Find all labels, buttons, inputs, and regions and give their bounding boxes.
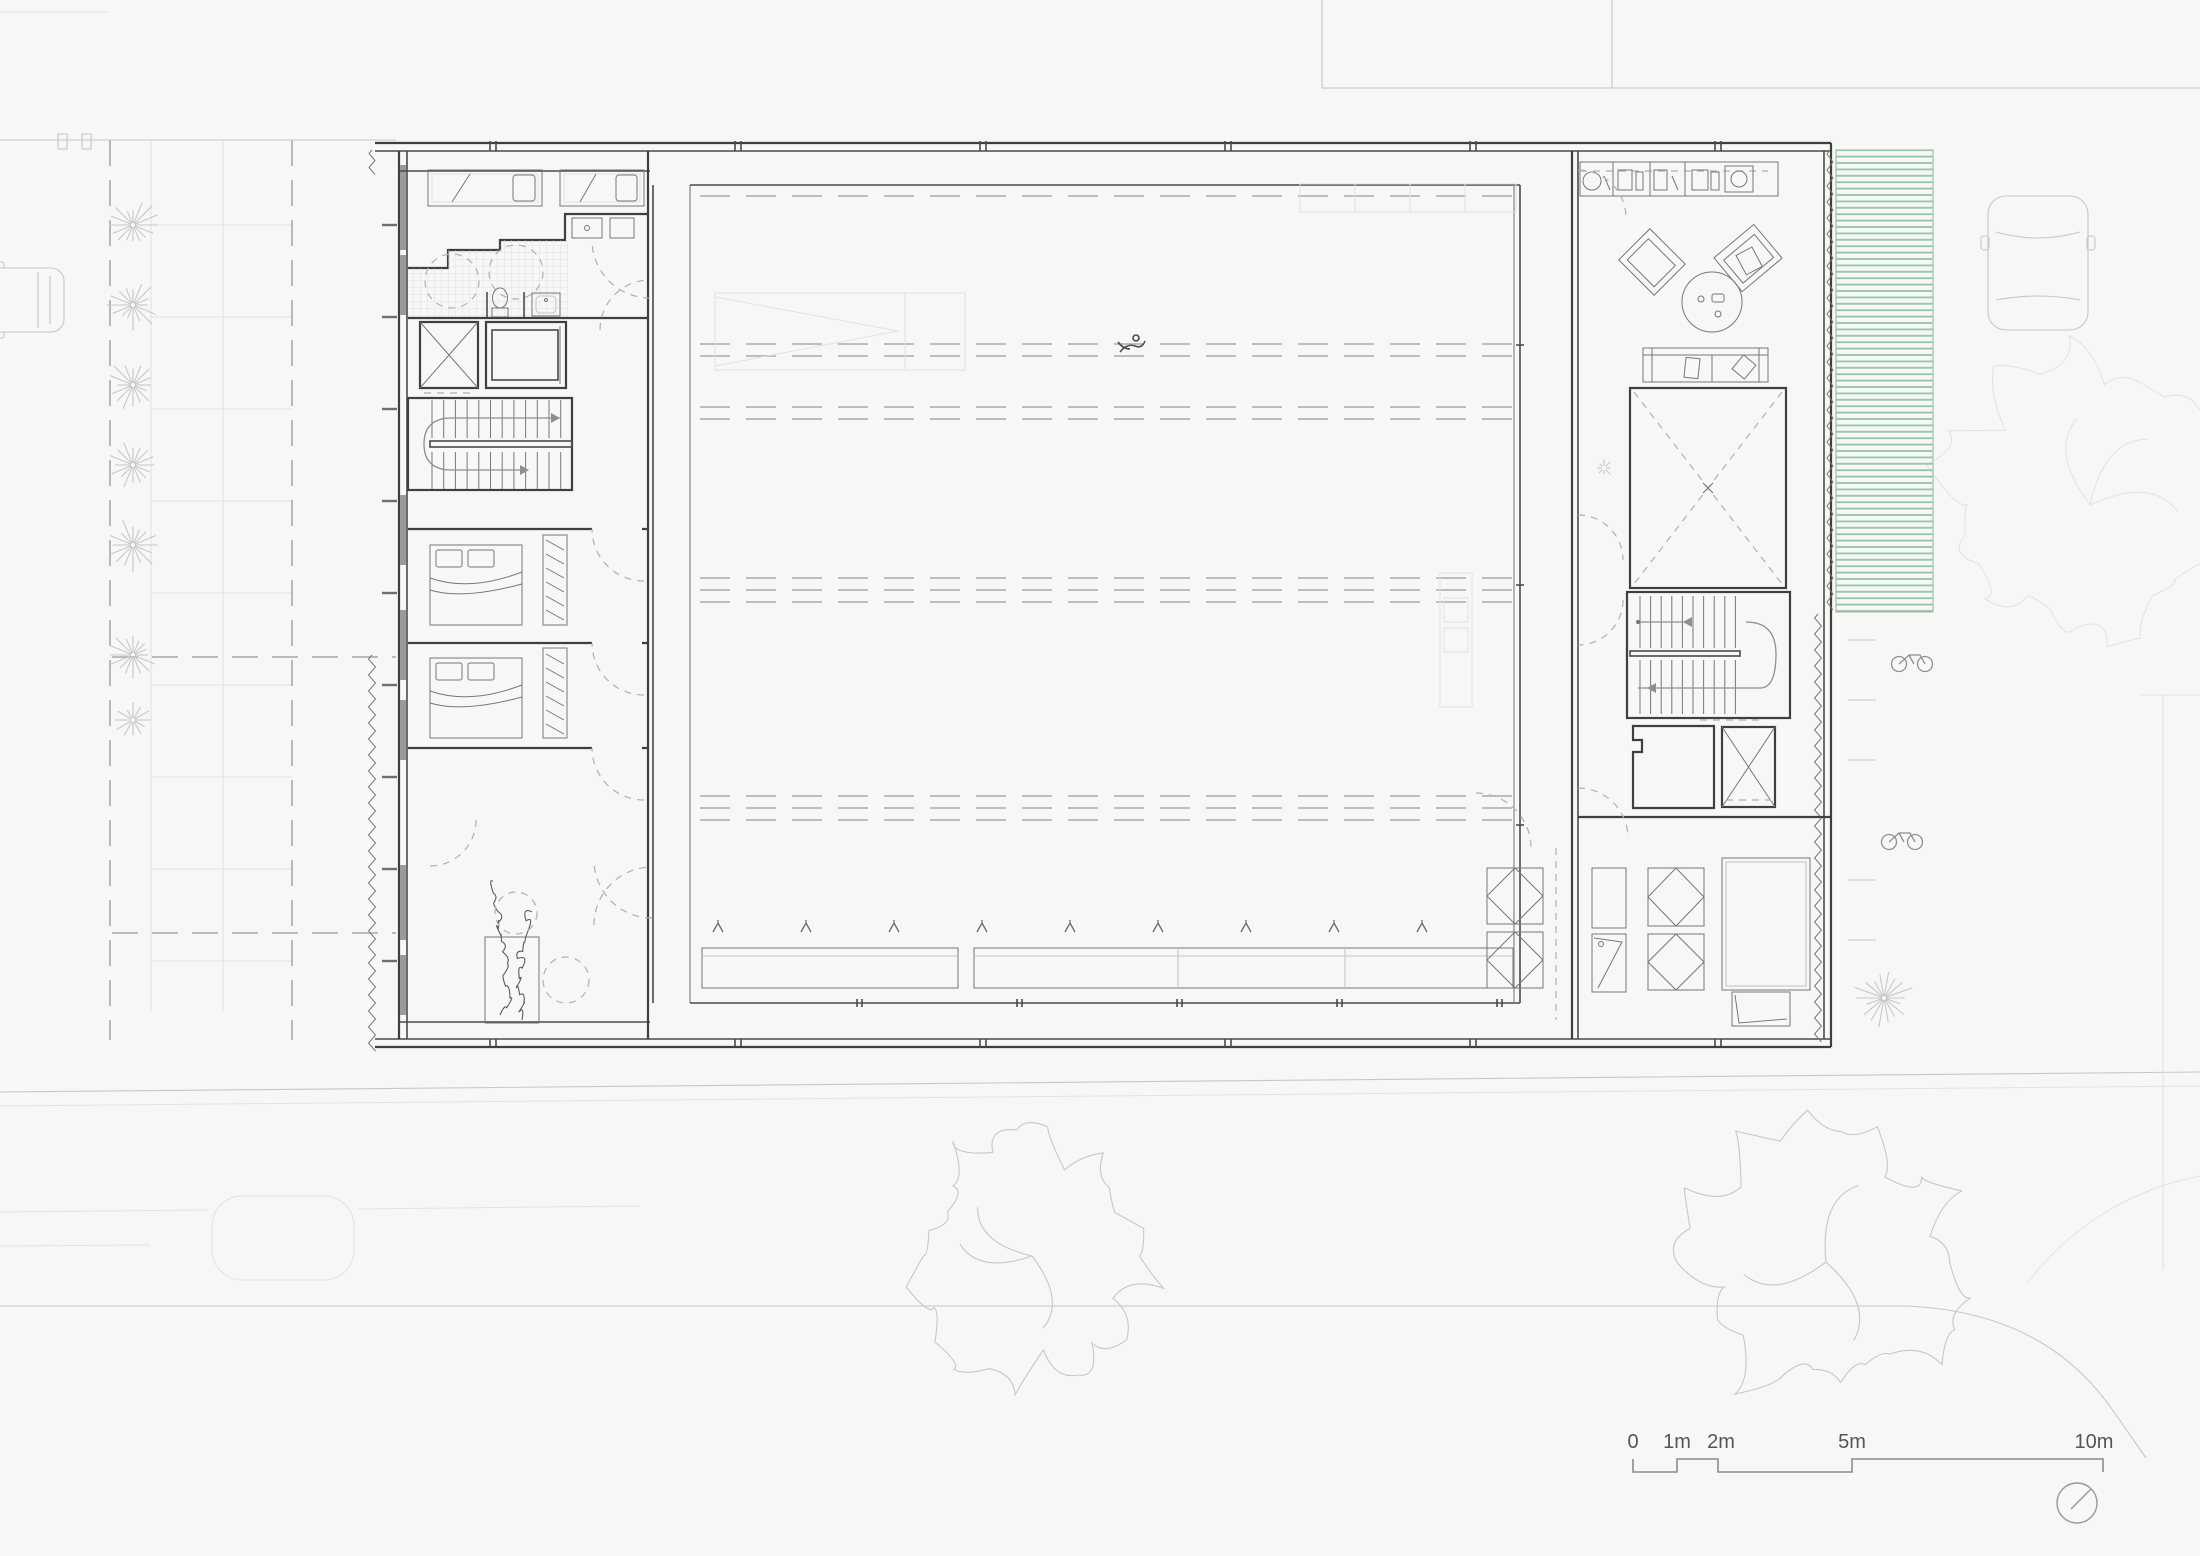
void-cross-icon [1630, 388, 1786, 588]
lounge-room [1592, 858, 1810, 1026]
planting-strip-icon [107, 203, 158, 736]
bike-parking-dashes [1848, 640, 1876, 940]
single-bed-icon [560, 170, 644, 206]
central-hall [653, 184, 1556, 1020]
diamond-table-icon [1648, 868, 1704, 990]
platform-lift [1440, 573, 1472, 707]
sofa-icon [1643, 348, 1768, 382]
stair-run-icon [408, 398, 572, 490]
exterior-walls [375, 141, 1831, 1047]
floor-marking-dashes [700, 196, 1512, 820]
kitchen-counter-icon [1580, 162, 1778, 196]
scale-label-2m: 2m [1707, 1431, 1735, 1453]
insulation-squiggle [369, 150, 1834, 1051]
tree-icon [1927, 336, 2200, 647]
hook-marks [713, 921, 1427, 932]
armchair-icon [1714, 224, 1782, 291]
glazing-mullions [857, 345, 1524, 1007]
double-bed-icon [430, 658, 522, 738]
scale-label-10m: 10m [2075, 1431, 2114, 1453]
bedroom [408, 529, 648, 625]
right-wing [1572, 151, 1831, 1039]
double-bed-icon [430, 545, 522, 625]
stair-run-icon [1627, 592, 1790, 718]
scale-label-5m: 5m [1838, 1431, 1866, 1453]
floor-plan-canvas: 0 1m 2m 5m 10m [0, 0, 2200, 1556]
elevator-icon [1722, 727, 1775, 807]
diamond-table-icon [1487, 848, 1556, 1020]
traffic-island [212, 1196, 354, 1280]
bench-band [702, 948, 1513, 988]
site-structure-outline [1322, 0, 1612, 88]
wardrobe-icon [543, 535, 567, 625]
elevator-icon [420, 322, 478, 393]
street-trees [906, 1110, 1971, 1395]
floor-plan-drawing: 0 1m 2m 5m 10m [0, 0, 2200, 1556]
green-pergola-strip [1836, 150, 1933, 612]
scale-label-0: 0 [1627, 1431, 1638, 1453]
round-table-icon [1682, 272, 1742, 332]
parking-area-left [151, 225, 397, 961]
armchair-icon [1619, 229, 1685, 295]
car-icon [0, 262, 64, 338]
wardrobe-icon [543, 648, 567, 738]
shaft-room [1633, 726, 1714, 808]
bedroom [408, 643, 648, 748]
washer-units [572, 218, 634, 238]
bathroom [408, 240, 648, 318]
facade-mullions [490, 141, 1721, 1047]
scale-bar: 0 1m 2m 5m 10m [1627, 1431, 2113, 1472]
car-icon [1981, 196, 2095, 330]
north-indicator-icon [2057, 1483, 2097, 1523]
single-bed-icon [428, 170, 542, 206]
equipment-band [1300, 184, 1516, 212]
door-swing-arcs [430, 170, 1628, 925]
bicycle-icon [1882, 655, 1933, 850]
daybed-icon [1722, 858, 1810, 1026]
ramp-outline [715, 293, 965, 370]
scale-label-1m: 1m [1663, 1431, 1691, 1453]
building [369, 141, 1934, 1051]
elevator-shaft [486, 322, 566, 388]
window-strip [400, 165, 406, 1015]
indoor-plant [485, 881, 589, 1023]
